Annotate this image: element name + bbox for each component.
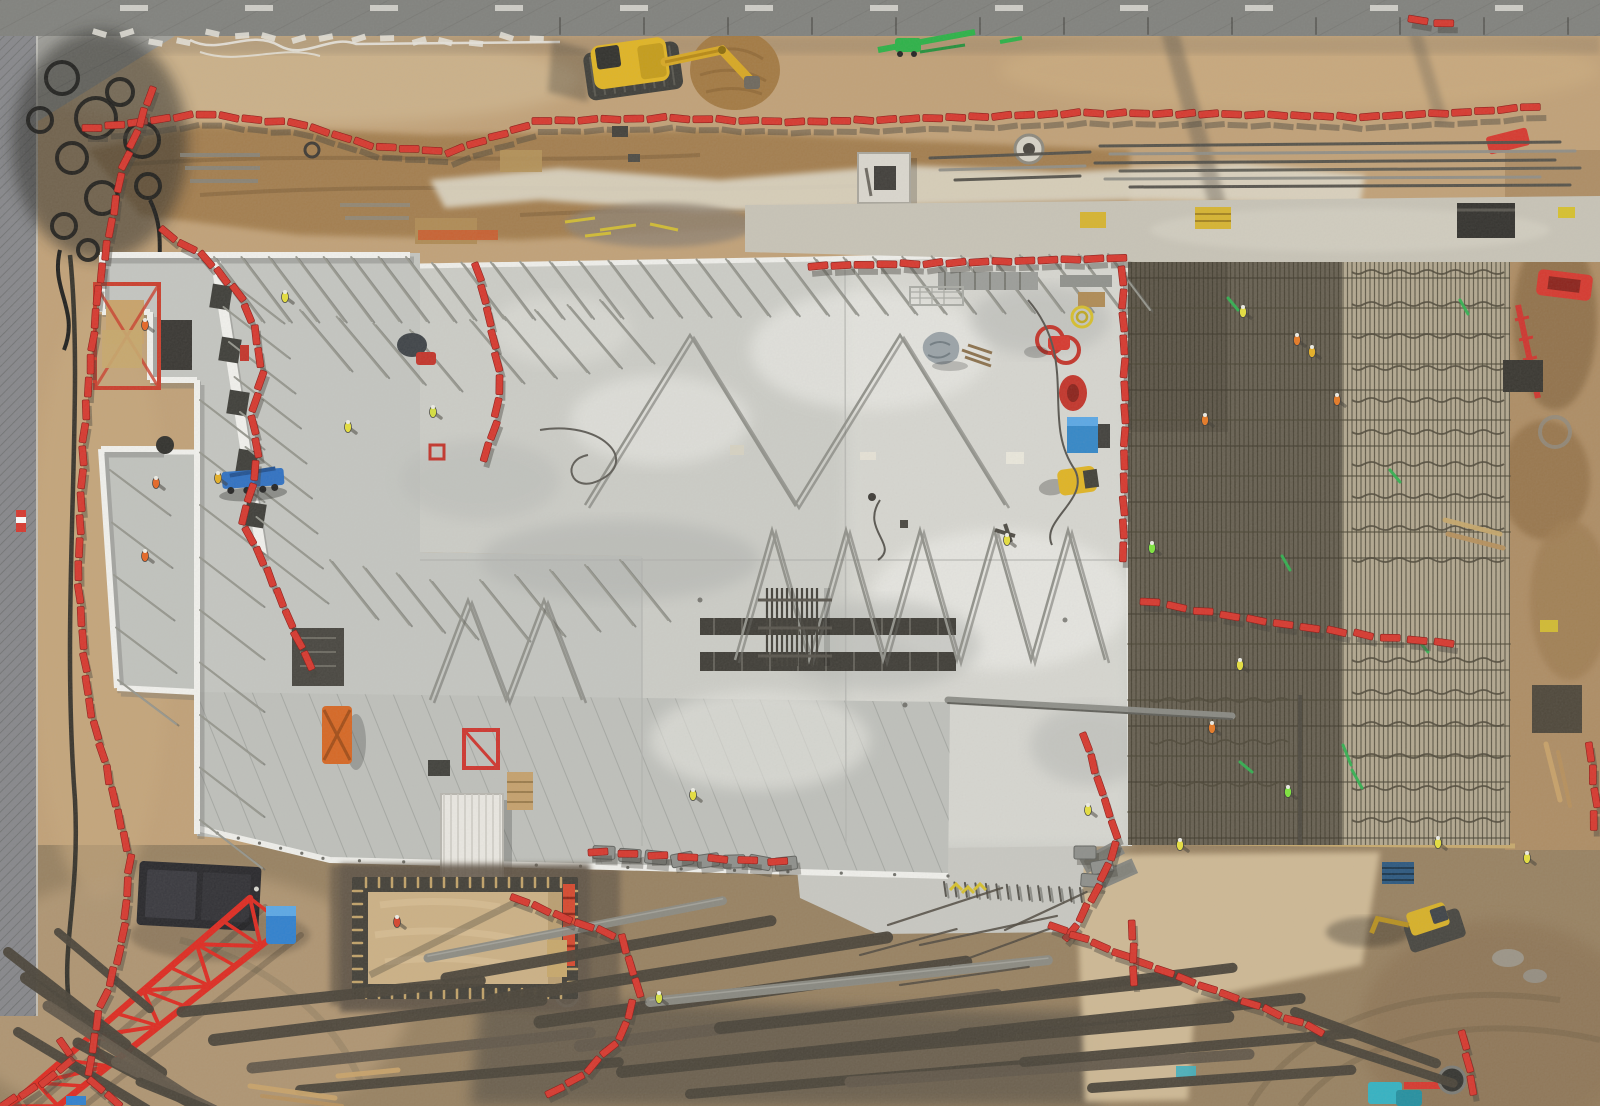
photo-grain [0,0,1600,1106]
aerial-photo [0,0,1600,1106]
